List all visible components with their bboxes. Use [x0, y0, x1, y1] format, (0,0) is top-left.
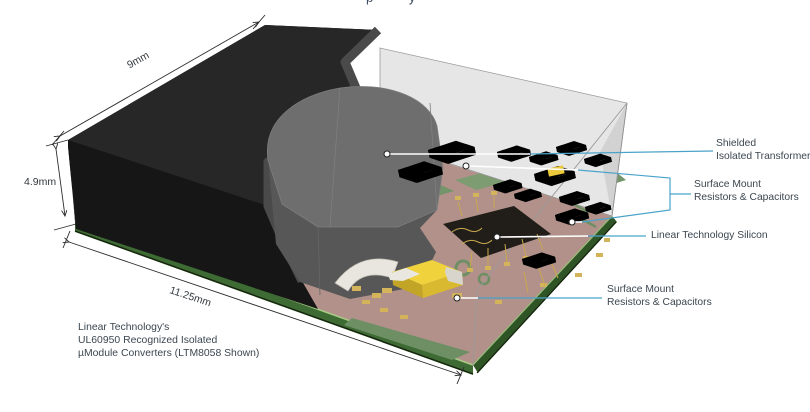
callout-line: Resistors & Capacitors [694, 192, 799, 205]
caption-line: Linear Technology's [78, 321, 259, 334]
figure-caption: Linear Technology's UL60950 Recognized I… [78, 321, 259, 360]
callout-line: Shielded [716, 138, 810, 151]
caption-line: µModule Converters (LTM8058 Shown) [78, 347, 259, 360]
caption-line: UL60950 Recognized Isolated [78, 334, 259, 347]
callout-line: Surface Mount [694, 179, 799, 192]
callout-line: Linear Technology Silicon [651, 230, 768, 243]
callout-surface-mount-upper: Surface Mount Resistors & Capacitors [694, 179, 799, 204]
callout-surface-mount-lower: Surface Mount Resistors & Capacitors [607, 284, 712, 309]
figure-canvas: .c-ivory .s-top{fill:#efede4}.c-ivory .s… [0, 0, 810, 412]
callout-shielded-isolated-transformer: Shielded Isolated Transformer [716, 138, 810, 163]
callout-line: Surface Mount [607, 284, 712, 297]
dimension-label-4-9mm: 4.9mm [24, 176, 56, 188]
callout-line: Resistors & Capacitors [607, 297, 712, 310]
callout-linear-technology-silicon: Linear Technology Silicon [651, 230, 768, 243]
cropped-title-fragment: p y [366, 0, 446, 8]
callout-line: Isolated Transformer [716, 151, 810, 164]
